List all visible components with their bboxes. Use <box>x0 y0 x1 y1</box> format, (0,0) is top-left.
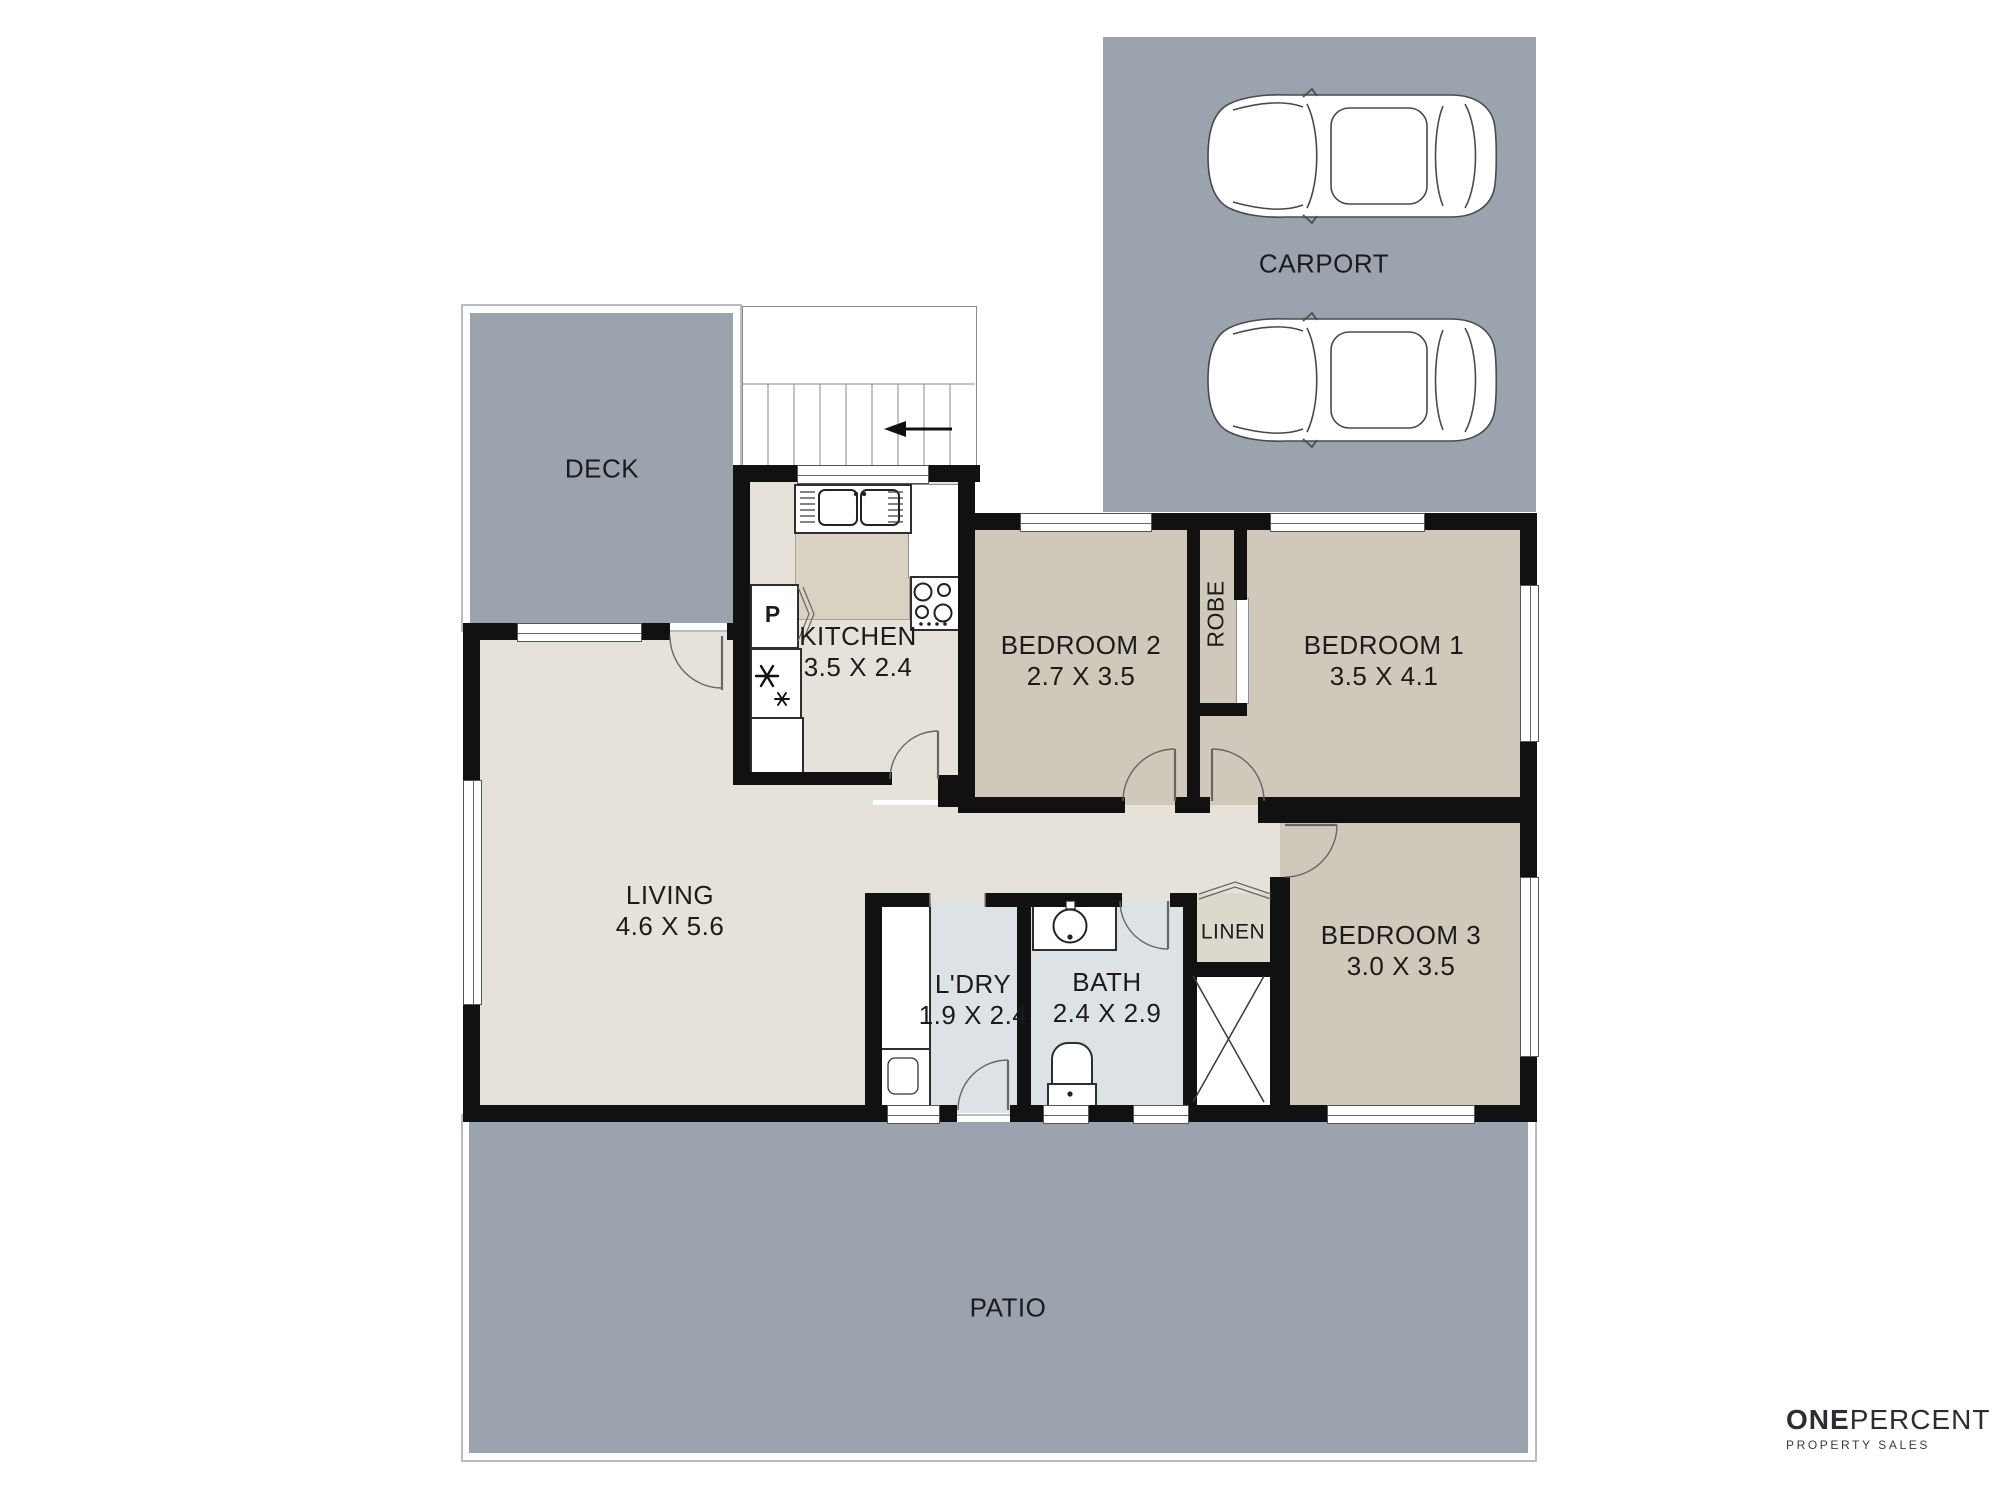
agency-logo-name: ONEPERCENT <box>1786 1406 1990 1434</box>
bedroom1-top-window <box>1270 513 1425 532</box>
room-name: BEDROOM 1 <box>1304 630 1465 660</box>
room-dims: 3.5 X 2.4 <box>804 652 913 682</box>
fridge <box>750 648 802 721</box>
room-name: BEDROOM 3 <box>1321 920 1482 950</box>
robe-label: ROBE <box>1201 580 1232 647</box>
cooktop <box>910 576 960 631</box>
bedroom3-label: BEDROOM 3 3.0 X 3.5 <box>1321 920 1482 982</box>
room-name: LIVING <box>626 880 714 910</box>
bath-label: BATH 2.4 X 2.9 <box>1053 967 1162 1029</box>
bedroom3-right-window <box>1520 877 1539 1057</box>
room-name: BEDROOM 2 <box>1001 630 1162 660</box>
room-dims: 3.5 X 4.1 <box>1330 661 1439 691</box>
agency-logo: ONEPERCENT PROPERTY SALES <box>1786 1406 1990 1452</box>
living-top-window <box>517 623 642 642</box>
washing-machine <box>879 1048 931 1107</box>
kitchen-bench-lower <box>750 717 804 776</box>
bedroom1-right-window <box>1520 585 1539 742</box>
hall-floor <box>873 805 1280 900</box>
carport-label: CARPORT <box>1259 249 1389 280</box>
agency-logo-tagline: PROPERTY SALES <box>1786 1438 1990 1452</box>
floor-plan: DECK CARPORT PATIO LIVING 4.6 X 5.6 KITC… <box>0 0 2000 1500</box>
pantry-label: P <box>750 584 795 645</box>
kitchen-counter <box>795 531 910 620</box>
living-floor <box>472 632 873 1113</box>
room-dims: 4.6 X 5.6 <box>616 911 725 941</box>
kitchen-window <box>797 465 929 484</box>
bath-vanity <box>1032 902 1117 951</box>
kitchen-side-bench <box>908 484 960 578</box>
robe-sliding-door <box>1236 598 1249 704</box>
laundry-window <box>887 1105 940 1124</box>
stairs <box>742 306 977 467</box>
living-left-window <box>463 780 482 1005</box>
living-label: LIVING 4.6 X 5.6 <box>616 880 725 942</box>
room-name: KITCHEN <box>799 621 917 651</box>
bedroom2-window <box>1020 513 1152 532</box>
shower <box>1190 973 1275 1113</box>
bath-window-2 <box>1133 1105 1189 1124</box>
laundry-label: L'DRY 1.9 X 2.4 <box>919 969 1028 1031</box>
room-dims: 2.7 X 3.5 <box>1027 661 1136 691</box>
patio-label: PATIO <box>970 1293 1047 1324</box>
room-dims: 1.9 X 2.4 <box>919 1000 1028 1030</box>
bedroom3-bottom-window <box>1327 1105 1475 1124</box>
deck-label: DECK <box>565 454 639 485</box>
room-dims: 2.4 X 2.9 <box>1053 998 1162 1028</box>
patio-area <box>469 1122 1528 1453</box>
kitchen-sink-unit <box>794 484 912 534</box>
linen-label: LINEN <box>1201 917 1265 948</box>
room-dims: 3.0 X 3.5 <box>1347 951 1456 981</box>
kitchen-label: KITCHEN 3.5 X 2.4 <box>799 621 917 683</box>
bedroom2-label: BEDROOM 2 2.7 X 3.5 <box>1001 630 1162 692</box>
room-name: BATH <box>1072 967 1141 997</box>
bath-window-1 <box>1043 1105 1089 1124</box>
bedroom1-label: BEDROOM 1 3.5 X 4.1 <box>1304 630 1465 692</box>
room-name: L'DRY <box>935 969 1011 999</box>
